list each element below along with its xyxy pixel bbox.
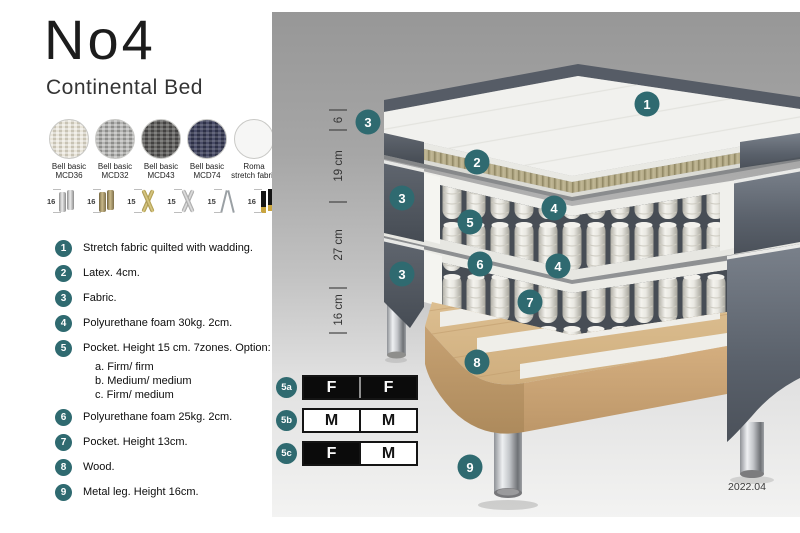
- svg-text:7: 7: [526, 295, 533, 310]
- svg-text:9: 9: [466, 460, 473, 475]
- callout-9: 9: [458, 455, 483, 480]
- fabric-swatch-label: Bell basicMCD36: [52, 162, 86, 180]
- fabric-swatch: Romastretch fabric: [232, 119, 276, 180]
- leg-cylinder-bronze-icon: [97, 188, 116, 214]
- feature-item: 5 Pocket. Height 15 cm. 7zones. Option:: [55, 340, 273, 357]
- dimension-label: 27 cm: [333, 229, 345, 260]
- feature-number-badge: 6: [55, 409, 72, 426]
- callout-1: 1: [635, 92, 660, 117]
- feature-number-badge: 3: [55, 290, 72, 307]
- callout-6: 6: [468, 252, 493, 277]
- firmness-option-5b: 5b M M: [276, 408, 418, 433]
- fabric-swatches: Bell basicMCD36 Bell basicMCD32 Bell bas…: [48, 119, 276, 180]
- dimension-label: 19 cm: [333, 150, 345, 181]
- fabric-swatch: Bell basicMCD36: [48, 119, 90, 180]
- feature-suboptions: a. Firm/ firm b. Medium/ medium c. Firm/…: [95, 361, 273, 403]
- firmness-badge: 5c: [276, 443, 297, 464]
- firmness-option-5c: 5c F M: [276, 441, 418, 466]
- feature-number-badge: 8: [55, 459, 72, 476]
- corner-leg: [494, 427, 522, 493]
- svg-text:3: 3: [398, 191, 405, 206]
- leg-option: 15: [167, 188, 196, 214]
- leg-option: 16: [47, 188, 76, 214]
- feature-item: 4 Polyurethane foam 30kg. 2cm.: [55, 315, 273, 332]
- fabric-swatch-circle: [187, 119, 227, 159]
- svg-text:4: 4: [554, 259, 562, 274]
- fabric-swatch-circle: [49, 119, 89, 159]
- feature-number-badge: 4: [55, 315, 72, 332]
- callout-3b: 3: [390, 186, 415, 211]
- fabric-swatch: Bell basicMCD43: [140, 119, 182, 180]
- feature-item: 1 Stretch fabric quilted with wadding.: [55, 240, 273, 257]
- callout-2: 2: [465, 150, 490, 175]
- firmness-badge: 5a: [276, 377, 297, 398]
- leg-hairpin-icon: [218, 188, 237, 214]
- dimension-label: 6: [333, 117, 345, 123]
- fabric-swatch-circle: [141, 119, 181, 159]
- fabric-swatch-circle: [95, 119, 135, 159]
- feature-item: 8 Wood.: [55, 459, 273, 476]
- leg-option: 15: [127, 188, 156, 214]
- svg-text:3: 3: [398, 267, 405, 282]
- feature-number-badge: 1: [55, 240, 72, 257]
- leg-options: 16 16 15 15 15 16: [47, 188, 277, 214]
- svg-text:3: 3: [364, 115, 371, 130]
- fabric-swatch-circle: [234, 119, 274, 159]
- callout-3a: 3: [356, 110, 381, 135]
- fabric-swatch-label: Bell basicMCD74: [190, 162, 224, 180]
- feature-item: 9 Metal leg. Height 16cm.: [55, 484, 273, 501]
- callout-4b: 4: [546, 254, 571, 279]
- firmness-box: F F: [302, 375, 418, 400]
- firmness-box: F M: [302, 441, 418, 466]
- svg-text:2: 2: [473, 155, 480, 170]
- callout-8: 8: [465, 350, 490, 375]
- page-subtitle: Continental Bed: [46, 76, 203, 100]
- fabric-swatch: Bell basicMCD74: [186, 119, 228, 180]
- callout-7: 7: [518, 290, 543, 315]
- leg-cross-gold-icon: [138, 188, 157, 214]
- leg-cross-silver-icon: [178, 188, 197, 214]
- leg-cylinder-silver-icon: [57, 188, 76, 214]
- callout-3c: 3: [390, 262, 415, 287]
- feature-item: 2 Latex. 4cm.: [55, 265, 273, 282]
- feature-number-badge: 5: [55, 340, 72, 357]
- callout-4a: 4: [542, 196, 567, 221]
- right-leg: [740, 422, 764, 474]
- leg-option: 16: [87, 188, 116, 214]
- version-date: 2022.04: [690, 481, 766, 493]
- feature-item: 6 Polyurethane foam 25kg. 2cm.: [55, 409, 273, 426]
- callout-5: 5: [458, 210, 483, 235]
- svg-text:8: 8: [473, 355, 480, 370]
- firmness-box: M M: [302, 408, 418, 433]
- svg-text:1: 1: [643, 97, 650, 112]
- product-sheet: { "accent_color": "#2f6a70", "header": {…: [0, 0, 800, 533]
- feature-number-badge: 9: [55, 484, 72, 501]
- firmness-option-5a: 5a F F: [276, 375, 418, 400]
- fabric-swatch-label: Bell basicMCD32: [98, 162, 132, 180]
- feature-list: 1 Stretch fabric quilted with wadding. 2…: [55, 240, 273, 509]
- fabric-swatch: Bell basicMCD32: [94, 119, 136, 180]
- dimension-label: 16 cm: [333, 294, 345, 325]
- feature-item: 7 Pocket. Height 13cm.: [55, 434, 273, 451]
- fabric-swatch-label: Bell basicMCD43: [144, 162, 178, 180]
- fabric-swatch-label: Romastretch fabric: [231, 162, 277, 180]
- feature-number-badge: 2: [55, 265, 72, 282]
- svg-text:4: 4: [550, 201, 558, 216]
- firmness-badge: 5b: [276, 410, 297, 431]
- page-title: No4: [44, 12, 156, 68]
- leg-option: 15: [208, 188, 237, 214]
- svg-text:6: 6: [476, 257, 483, 272]
- feature-number-badge: 7: [55, 434, 72, 451]
- feature-item: 3 Fabric.: [55, 290, 273, 307]
- svg-text:5: 5: [466, 215, 473, 230]
